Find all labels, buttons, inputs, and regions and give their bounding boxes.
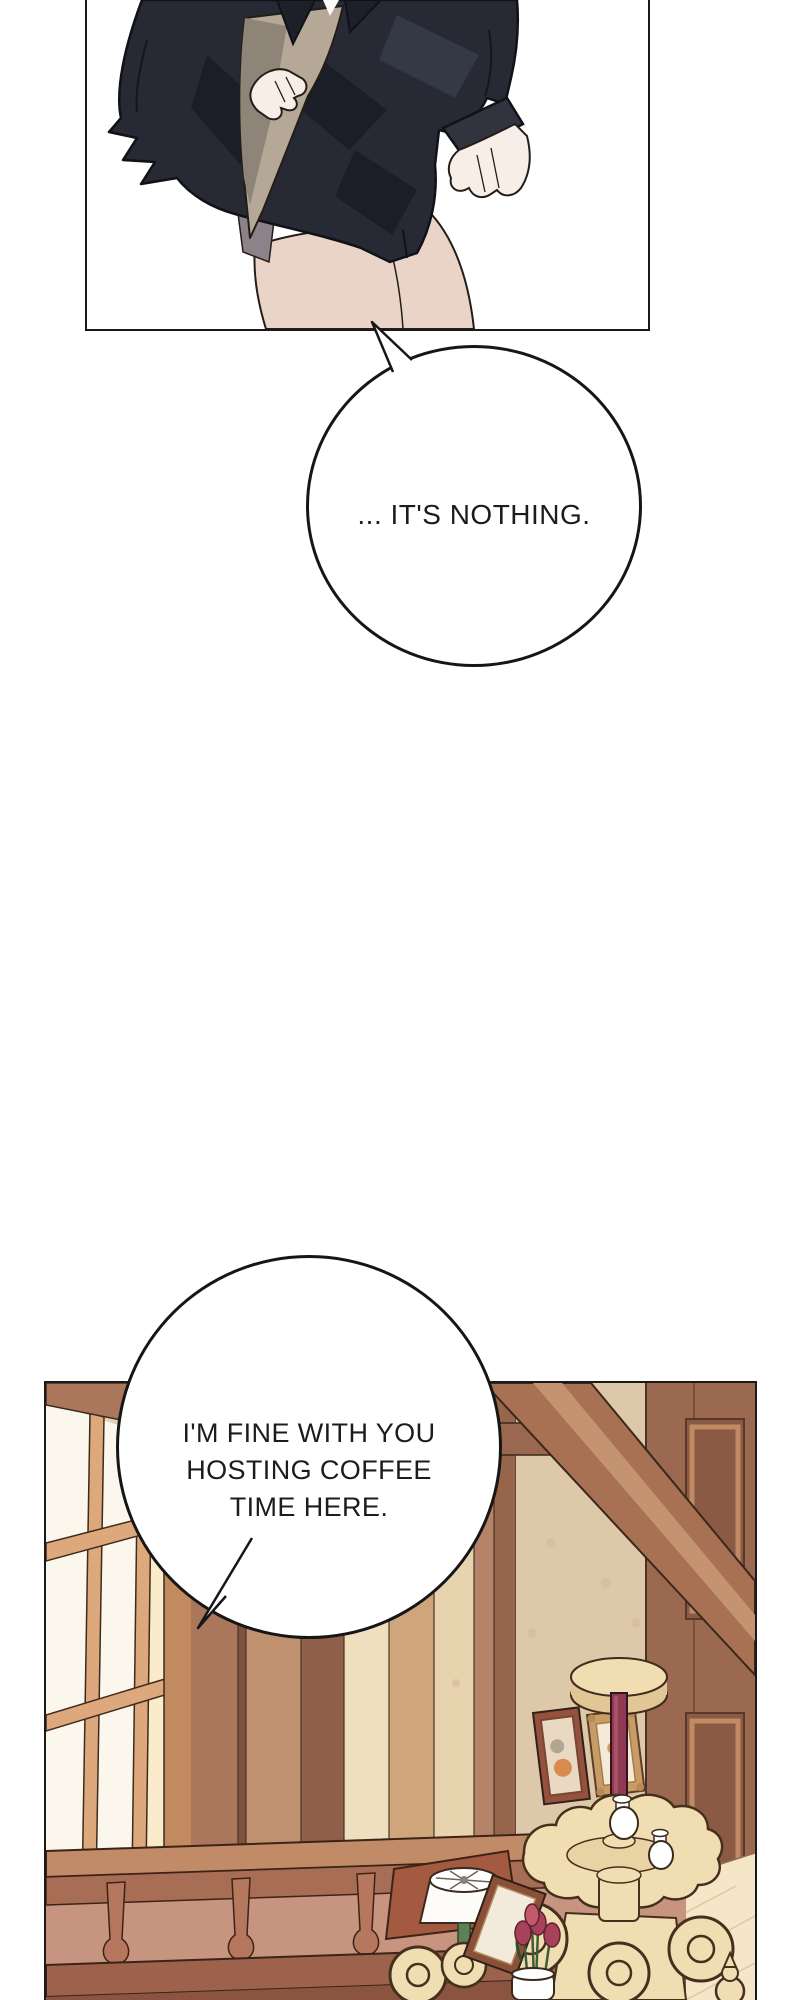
speech-text-2-line-2: HOSTING COFFEE xyxy=(183,1452,436,1489)
speech-bubble-1: ... IT'S NOTHING. xyxy=(306,345,642,667)
picture-frame-red xyxy=(533,1707,590,1804)
bubble-2-tail xyxy=(180,1520,270,1640)
panel-top xyxy=(85,0,650,331)
speech-text-1: ... IT'S NOTHING. xyxy=(357,499,590,531)
speech-bubble-2: I'M FINE WITH YOU HOSTING COFFEE TIME HE… xyxy=(116,1255,502,1639)
bubble-1-tail xyxy=(355,308,425,388)
speech-text-2-line-1: I'M FINE WITH YOU xyxy=(183,1415,436,1452)
comic-page: ... IT'S NOTHING. I'M FINE WITH YOU HOST… xyxy=(0,0,800,2000)
speech-text-2: I'M FINE WITH YOU HOSTING COFFEE TIME HE… xyxy=(183,1415,436,1526)
figure-artwork xyxy=(87,0,648,329)
